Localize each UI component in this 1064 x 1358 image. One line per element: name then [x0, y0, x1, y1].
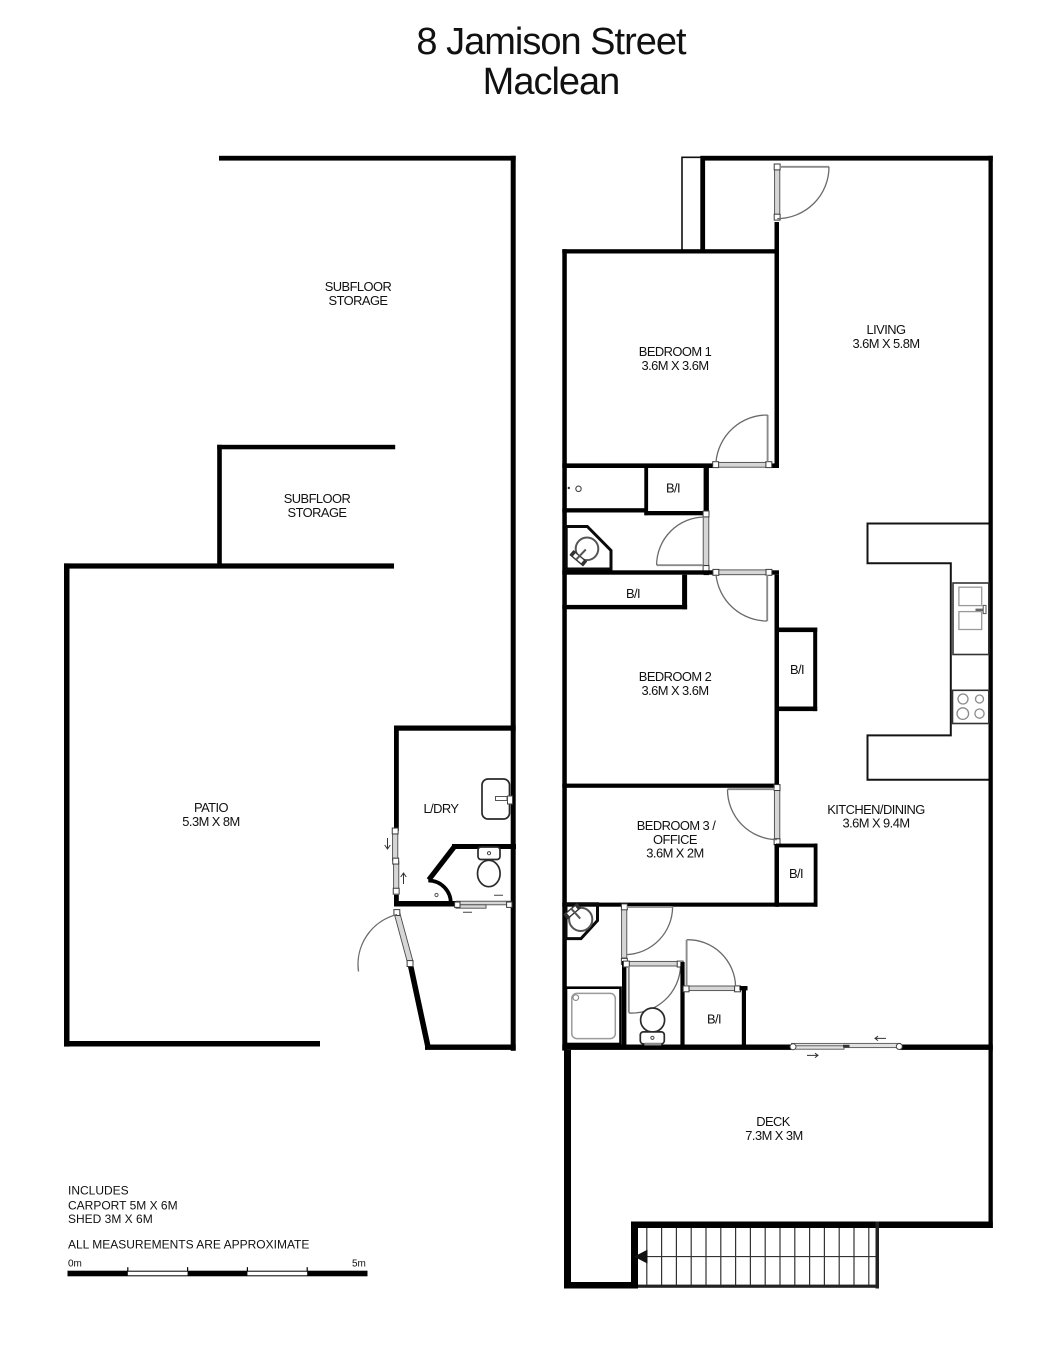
svg-text:STORAGE: STORAGE: [288, 505, 348, 520]
svg-text:B/I: B/I: [626, 586, 640, 601]
svg-text:LIVING: LIVING: [867, 322, 906, 337]
svg-text:3.6M X 5.8M: 3.6M X 5.8M: [852, 336, 919, 351]
svg-text:8 Jamison Street: 8 Jamison Street: [416, 21, 687, 63]
svg-text:BEDROOM 1: BEDROOM 1: [639, 344, 712, 359]
svg-text:B/I: B/I: [707, 1012, 721, 1027]
svg-text:SUBFLOOR: SUBFLOOR: [325, 279, 392, 294]
svg-text:STORAGE: STORAGE: [329, 293, 389, 308]
svg-text:0m: 0m: [68, 1259, 82, 1270]
svg-text:B/I: B/I: [789, 866, 803, 881]
svg-text:5m: 5m: [352, 1259, 366, 1270]
svg-text:SUBFLOOR: SUBFLOOR: [284, 491, 351, 506]
svg-text:3.6M X 2M: 3.6M X 2M: [646, 846, 703, 861]
svg-text:5.3M X 8M: 5.3M X 8M: [182, 814, 239, 829]
svg-text:B/I: B/I: [790, 662, 804, 677]
svg-text:3.6M X 3.6M: 3.6M X 3.6M: [641, 358, 708, 373]
svg-text:ALL MEASUREMENTS ARE APPROXIMA: ALL MEASUREMENTS ARE APPROXIMATE: [68, 1238, 309, 1252]
svg-text:PATIO: PATIO: [194, 800, 229, 815]
svg-text:BEDROOM 3 /: BEDROOM 3 /: [637, 818, 716, 833]
svg-text:SHED 3M X 6M: SHED 3M X 6M: [68, 1212, 153, 1226]
svg-text:7.3M X 3M: 7.3M X 3M: [745, 1128, 802, 1143]
svg-text:INCLUDES: INCLUDES: [68, 1184, 129, 1198]
svg-text:L/DRY: L/DRY: [424, 801, 460, 816]
svg-text:CARPORT 5M X 6M: CARPORT 5M X 6M: [68, 1199, 178, 1213]
svg-text:3.6M X 9.4M: 3.6M X 9.4M: [842, 816, 909, 831]
svg-text:3.6M X 3.6M: 3.6M X 3.6M: [641, 683, 708, 698]
svg-text:DECK: DECK: [756, 1114, 791, 1129]
svg-text:BEDROOM 2: BEDROOM 2: [639, 669, 712, 684]
svg-text:OFFICE: OFFICE: [653, 832, 698, 847]
svg-text:B/I: B/I: [666, 481, 680, 496]
svg-text:Maclean: Maclean: [483, 61, 620, 103]
svg-text:KITCHEN/DINING: KITCHEN/DINING: [827, 802, 925, 817]
